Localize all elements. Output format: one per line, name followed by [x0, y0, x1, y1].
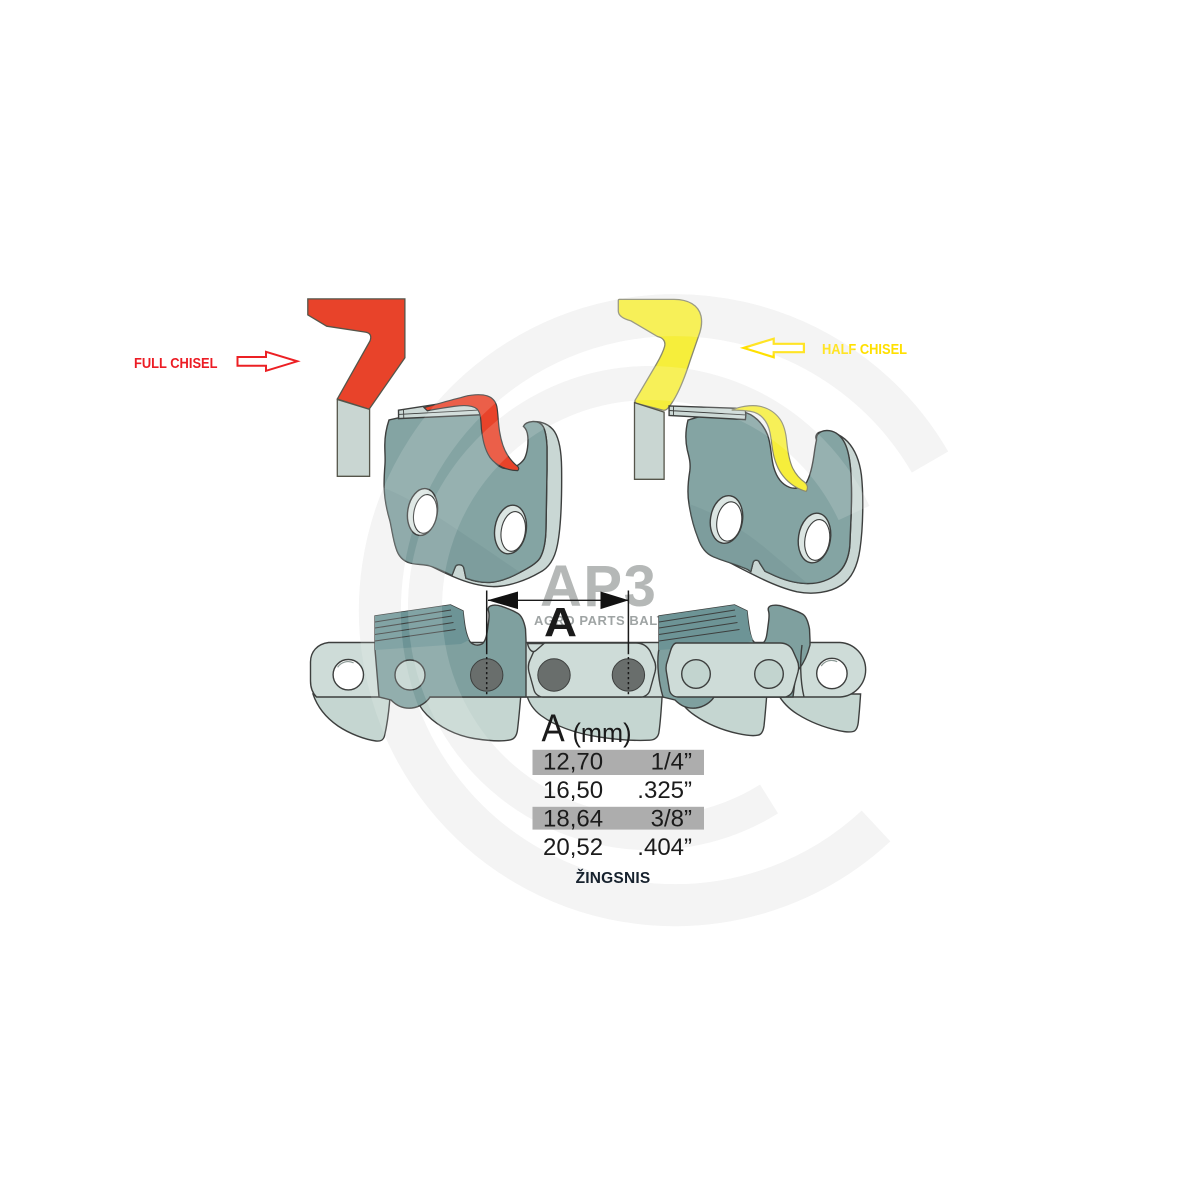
svg-text:.404”: .404” [637, 834, 692, 861]
svg-text:(mm): (mm) [573, 718, 632, 748]
svg-text:1/4”: 1/4” [651, 749, 692, 776]
svg-text:20,52: 20,52 [543, 834, 603, 861]
svg-text:FULL CHISEL: FULL CHISEL [134, 356, 218, 372]
svg-text:ŽINGSNIS: ŽINGSNIS [576, 869, 651, 887]
svg-text:A: A [544, 599, 577, 645]
svg-text:3/8”: 3/8” [651, 806, 692, 833]
svg-text:12,70: 12,70 [543, 749, 603, 776]
svg-text:A: A [542, 708, 565, 751]
svg-text:16,50: 16,50 [543, 777, 603, 804]
svg-text:18,64: 18,64 [543, 806, 603, 833]
svg-text:.325”: .325” [637, 777, 692, 804]
